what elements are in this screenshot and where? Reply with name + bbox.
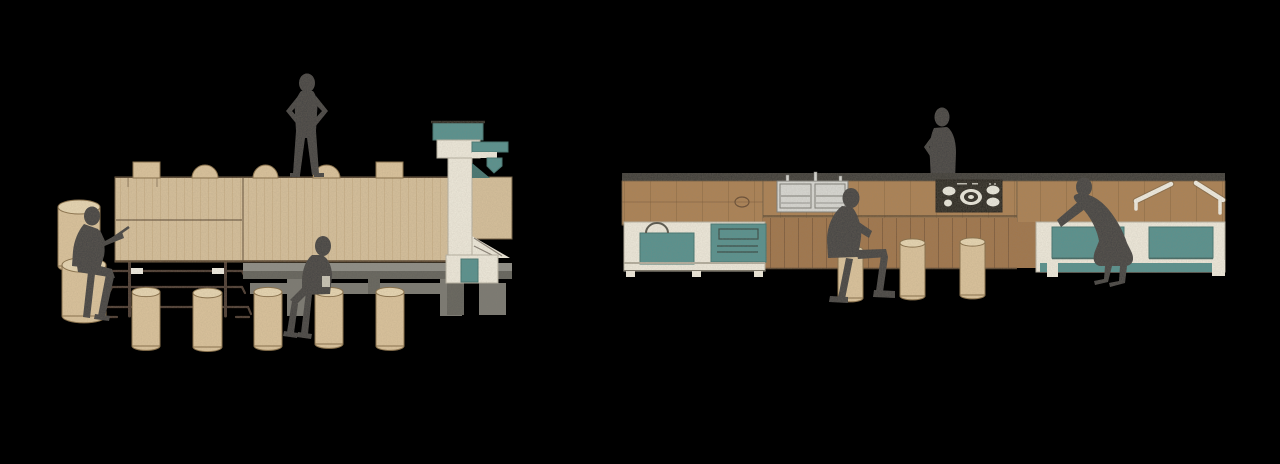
rail-clamp — [131, 268, 143, 274]
cabinet-door — [640, 233, 694, 264]
cabinet-door — [1149, 227, 1213, 258]
burner — [943, 187, 956, 196]
stool — [376, 287, 404, 350]
faucet-stub — [839, 176, 842, 181]
faucet-stub — [814, 172, 817, 181]
rail-clamp — [212, 268, 224, 274]
stool-row — [838, 238, 985, 302]
stool — [315, 287, 343, 348]
kick-band — [1040, 263, 1225, 272]
canvas: Elevation rendering of communal table an… — [0, 0, 1280, 464]
tabletop-object — [133, 162, 160, 178]
stool — [960, 238, 985, 299]
tabletop-object — [376, 162, 403, 178]
faucet-stub — [786, 175, 789, 181]
stool — [132, 287, 160, 350]
burner — [944, 200, 952, 207]
cooktop — [936, 180, 1002, 212]
burner — [987, 198, 1000, 207]
burner — [987, 186, 1000, 195]
elevation-rendering: Elevation rendering of communal table an… — [0, 0, 1280, 464]
stool — [193, 288, 222, 351]
stool — [900, 239, 925, 300]
stool — [254, 287, 282, 350]
counter-top-strip — [622, 173, 1225, 181]
control-marks — [957, 183, 967, 185]
left-cabinets — [624, 222, 766, 277]
held-object — [322, 276, 330, 287]
control-marks — [972, 183, 978, 185]
teal-bin — [461, 259, 478, 282]
